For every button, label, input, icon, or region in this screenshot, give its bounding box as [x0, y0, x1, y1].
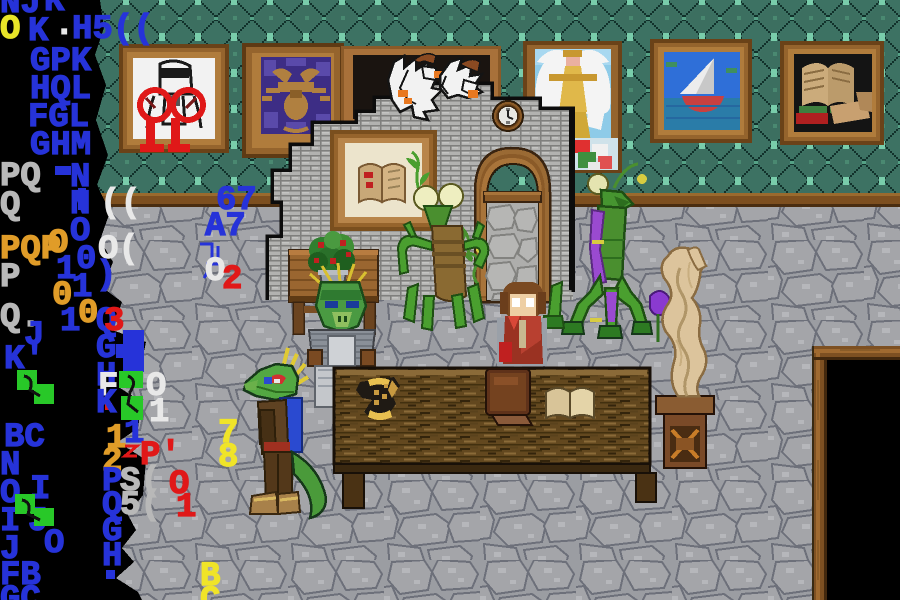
svg-text:O: O	[0, 11, 20, 49]
svg-text:P: P	[0, 259, 20, 297]
svg-text:2: 2	[222, 261, 242, 299]
svg-text:((: ((	[100, 185, 141, 223]
svg-text:C: C	[200, 582, 220, 600]
svg-text:8: 8	[218, 439, 238, 477]
svg-text:O: O	[44, 525, 64, 563]
svg-text:A7: A7	[205, 208, 246, 246]
svg-text:GC: GC	[0, 581, 41, 600]
svg-text:K: K	[96, 385, 117, 423]
svg-text:): )	[96, 257, 116, 295]
svg-text:1: 1	[176, 489, 196, 527]
svg-text:Q: Q	[0, 187, 20, 225]
svg-text:5(: 5(	[120, 487, 161, 525]
svg-text:1: 1	[149, 394, 169, 432]
